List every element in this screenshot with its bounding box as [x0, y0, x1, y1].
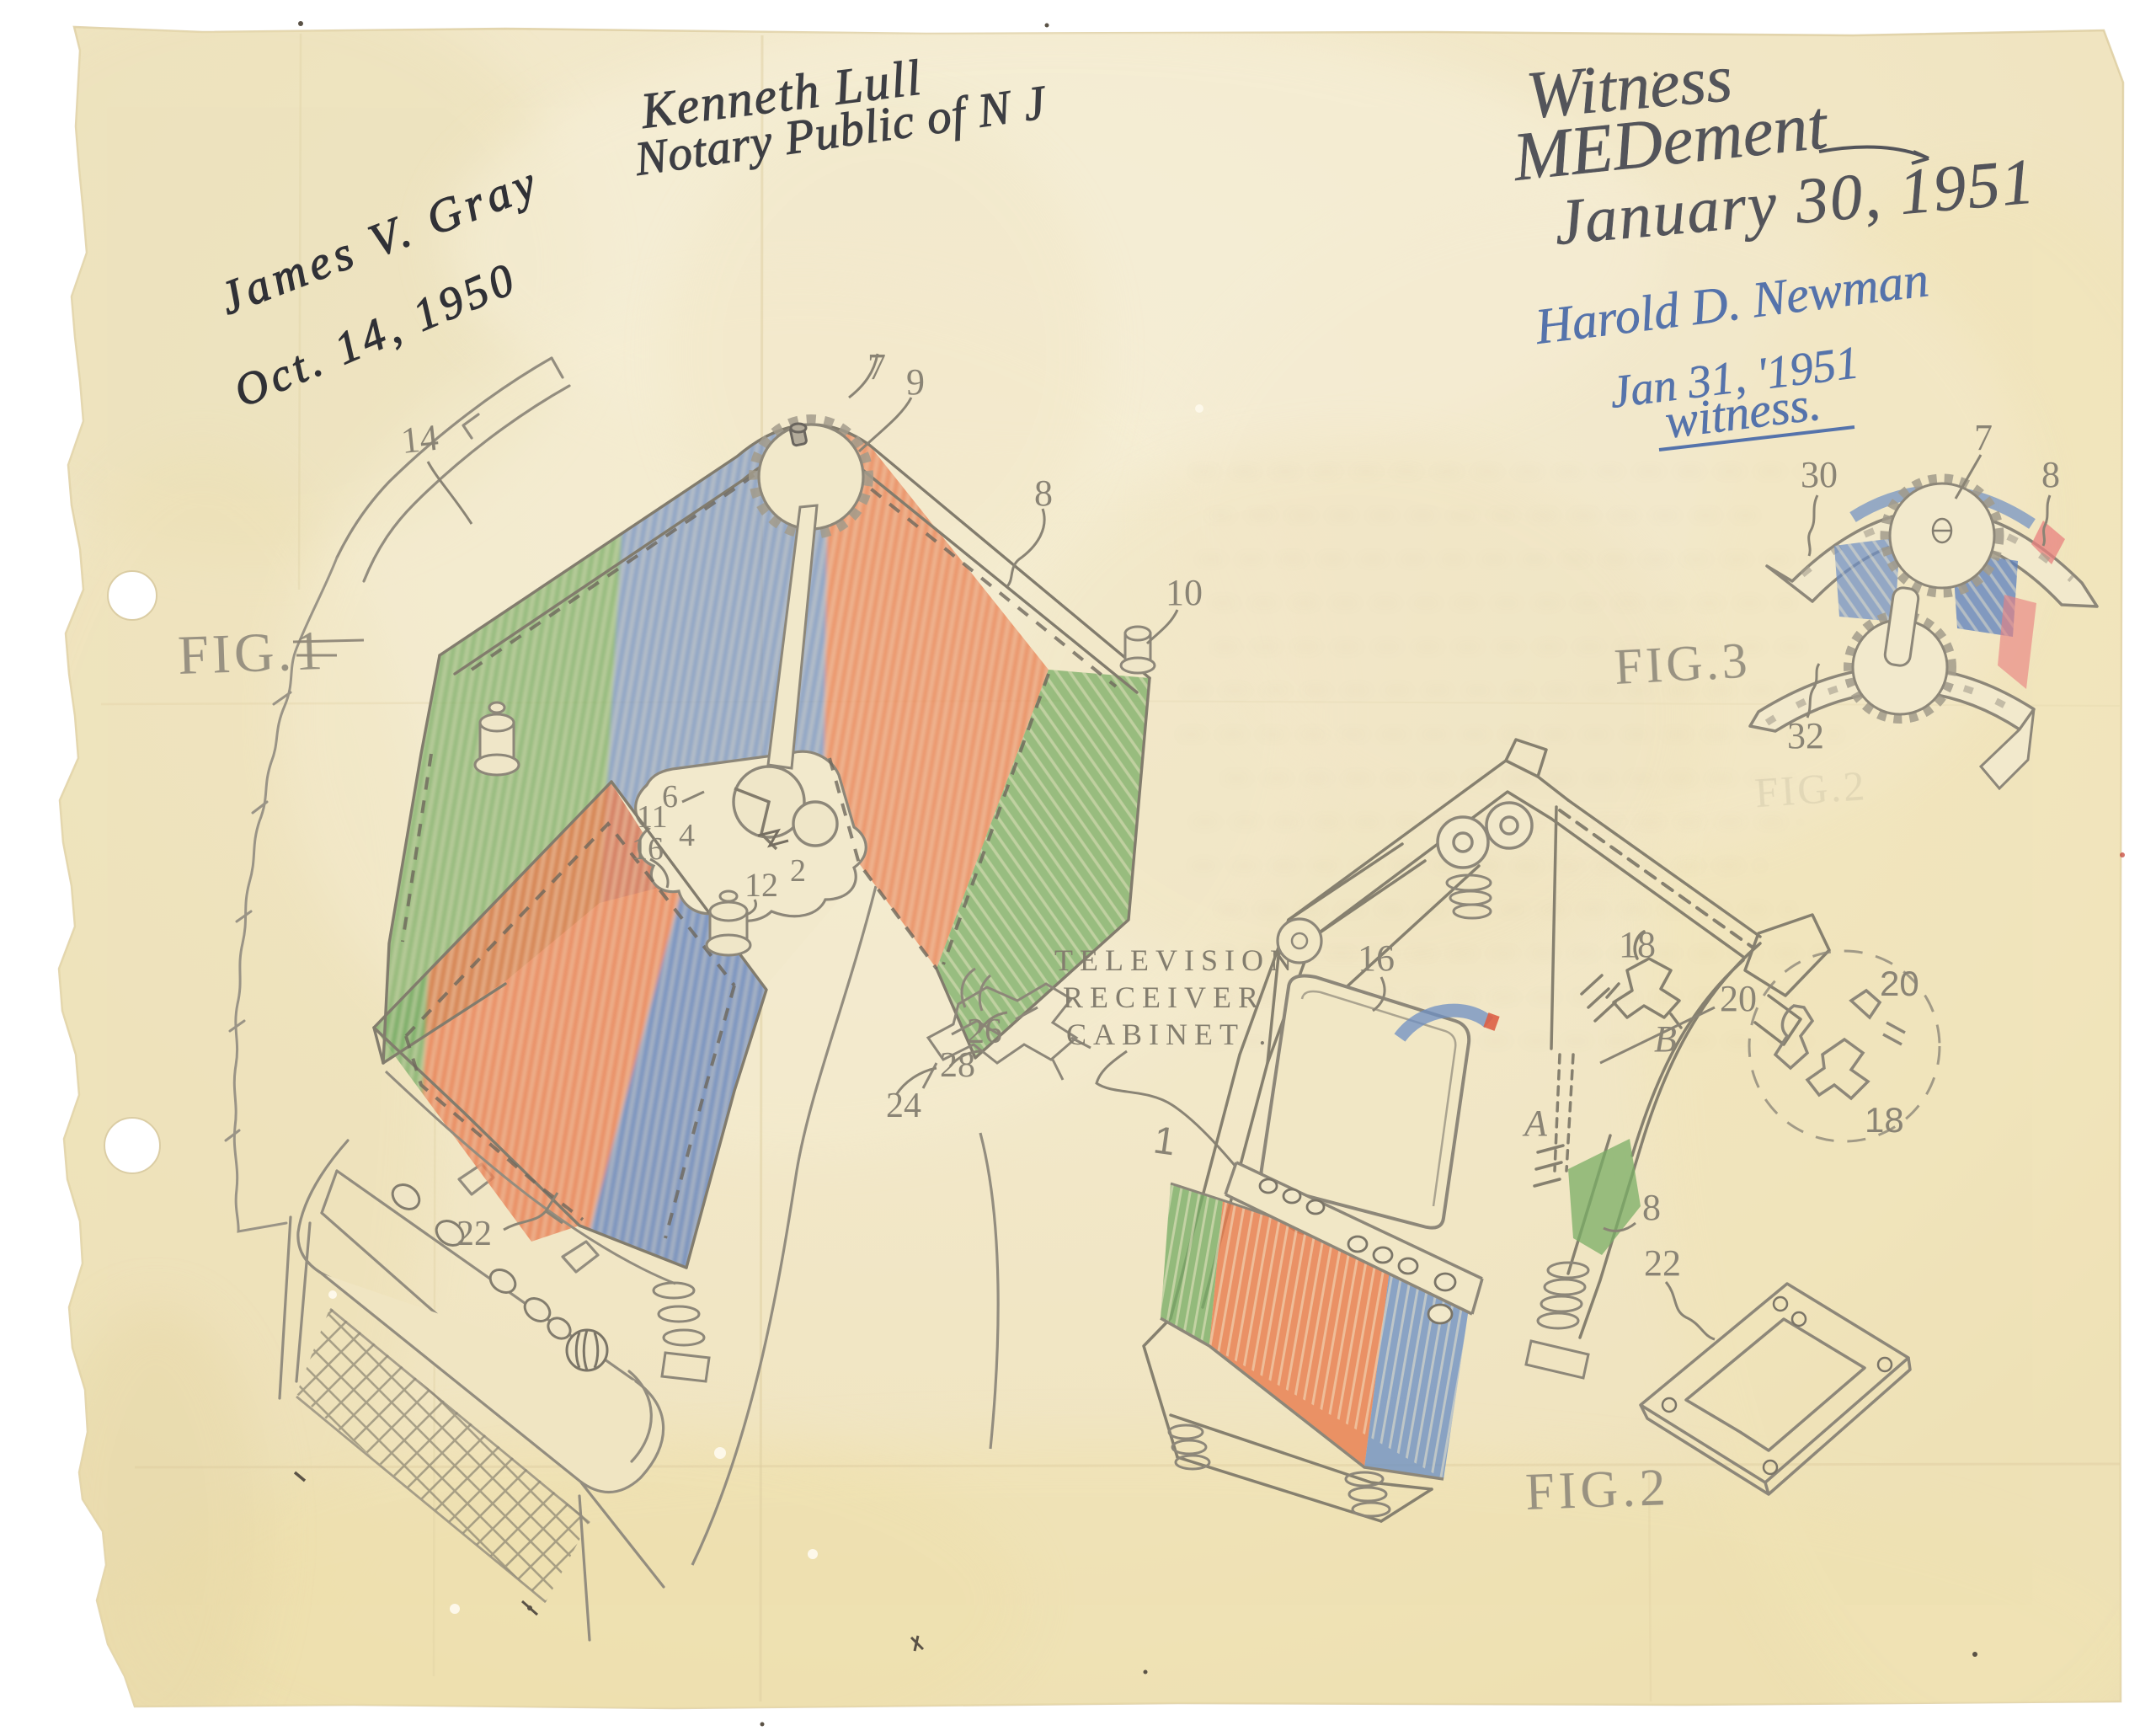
svg-text:32: 32 [1787, 715, 1824, 756]
svg-text:16: 16 [1358, 937, 1395, 979]
svg-text:20: 20 [1720, 978, 1757, 1019]
svg-text:4: 4 [679, 818, 695, 853]
svg-text:RECEIVER: RECEIVER [1063, 980, 1265, 1014]
svg-text:8: 8 [1034, 473, 1053, 514]
svg-text:22: 22 [1644, 1242, 1681, 1284]
svg-text:8: 8 [1642, 1187, 1661, 1228]
svg-text:2: 2 [790, 853, 806, 889]
svg-text:20: 20 [1880, 964, 1919, 1003]
svg-text:12: 12 [744, 866, 778, 904]
svg-text:10: 10 [1166, 572, 1203, 613]
svg-text:A: A [1522, 1103, 1548, 1144]
svg-text:FIG.1: FIG.1 [177, 620, 327, 686]
svg-text:TELEVISION: TELEVISION [1054, 943, 1299, 977]
svg-text:18: 18 [1619, 924, 1656, 965]
svg-text:14: 14 [399, 417, 440, 462]
svg-text:18: 18 [1865, 1100, 1904, 1140]
svg-text:8: 8 [2041, 454, 2060, 495]
svg-text:7: 7 [1974, 417, 1993, 458]
svg-text:FIG.2: FIG.2 [1524, 1459, 1671, 1521]
svg-text:FIG.3: FIG.3 [1613, 633, 1752, 695]
svg-text:30: 30 [1801, 454, 1838, 495]
svg-text:FIG.2: FIG.2 [1753, 761, 1869, 816]
svg-text:11: 11 [637, 799, 668, 835]
svg-text:22: 22 [456, 1215, 492, 1253]
svg-text:16: 16 [632, 831, 664, 867]
svg-text:9: 9 [906, 361, 925, 403]
svg-text:7: 7 [867, 346, 886, 387]
svg-text:24: 24 [886, 1087, 921, 1125]
svg-text:B: B [1654, 1018, 1677, 1060]
